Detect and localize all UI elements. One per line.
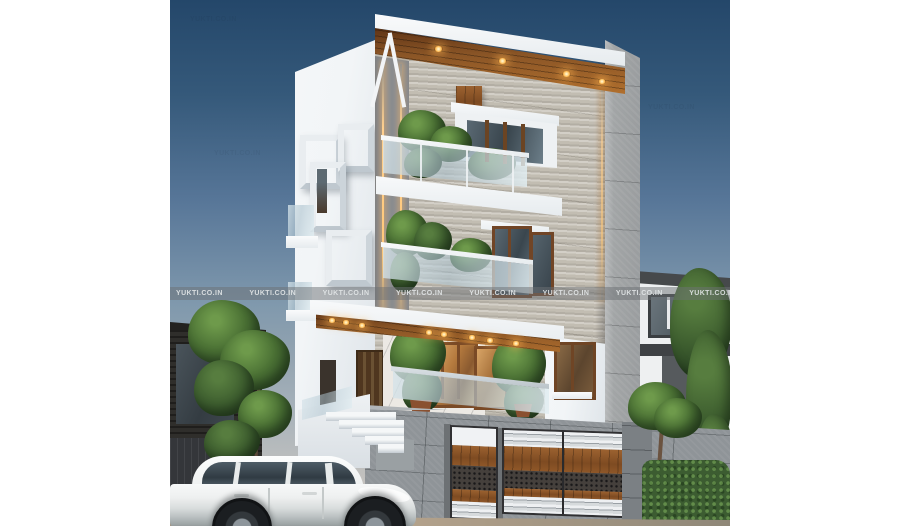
pedestrian-gate	[450, 425, 498, 521]
gate-white-panel	[452, 427, 496, 447]
sky-watermark: YUKTI.CO.IN	[648, 104, 695, 111]
hedge	[642, 460, 730, 526]
side-window-frame	[310, 162, 346, 232]
gate-lattice-panel	[504, 470, 562, 490]
watermark-text: YUKTI.CO.IN	[543, 290, 590, 297]
car-door-handle	[234, 494, 249, 497]
gate-wood-panel	[564, 448, 622, 474]
soffit-light	[434, 46, 443, 52]
car	[170, 454, 420, 526]
garage-gate	[502, 428, 624, 518]
facade-deco-box	[326, 230, 372, 286]
railing-post	[466, 148, 468, 192]
gate-slat-panel	[564, 498, 622, 516]
gate-wood-panel	[452, 445, 496, 467]
canopy-light	[358, 323, 366, 328]
watermark-text: YUKTI.CO.IN	[469, 290, 516, 297]
gate-slat-panel	[504, 496, 562, 514]
page: YUKTI.CO.IN YUKTI.CO.IN YUKTI.CO.IN	[0, 0, 900, 526]
watermark-text: YUKTI.CO.IN	[176, 290, 223, 297]
sky-watermark: YUKTI.CO.IN	[214, 150, 261, 157]
window-mullion	[571, 345, 574, 391]
soffit-light	[562, 71, 571, 77]
side-balcony-slab	[286, 236, 318, 248]
stair-step	[378, 444, 404, 453]
led-strip	[601, 90, 603, 300]
side-balcony-glass	[288, 205, 314, 239]
car-door-handle	[302, 492, 317, 495]
watermark-text: YUKTI.CO.IN	[616, 290, 663, 297]
gate-slat-panel	[452, 501, 496, 519]
gate-wood-panel	[504, 446, 562, 472]
canopy-light	[486, 338, 494, 343]
window-sill	[552, 392, 592, 399]
watermark-text: YUKTI.CO.IN	[689, 290, 730, 297]
canopy-light	[440, 332, 448, 337]
side-window	[317, 169, 327, 213]
gate-lattice-panel	[452, 465, 496, 491]
canopy-light	[512, 341, 520, 346]
watermark-text: YUKTI.CO.IN	[323, 290, 370, 297]
watermark-band: YUKTI.CO.IN YUKTI.CO.IN YUKTI.CO.IN YUKT…	[170, 287, 730, 300]
canopy-light	[328, 318, 336, 323]
sky-watermark: YUKTI.CO.IN	[190, 16, 237, 23]
canopy-light	[342, 320, 350, 325]
soffit-light	[498, 58, 507, 64]
canopy-light	[468, 335, 476, 340]
car-door-seam	[322, 487, 324, 519]
soffit-light	[598, 79, 606, 84]
canopy-light	[425, 330, 433, 335]
house-render-photo: YUKTI.CO.IN YUKTI.CO.IN YUKTI.CO.IN	[170, 0, 730, 526]
watermark-text: YUKTI.CO.IN	[396, 290, 443, 297]
gate-lattice-panel	[564, 472, 622, 492]
railing-post	[512, 154, 514, 196]
railing-post	[420, 142, 422, 186]
watermark-text: YUKTI.CO.IN	[249, 290, 296, 297]
